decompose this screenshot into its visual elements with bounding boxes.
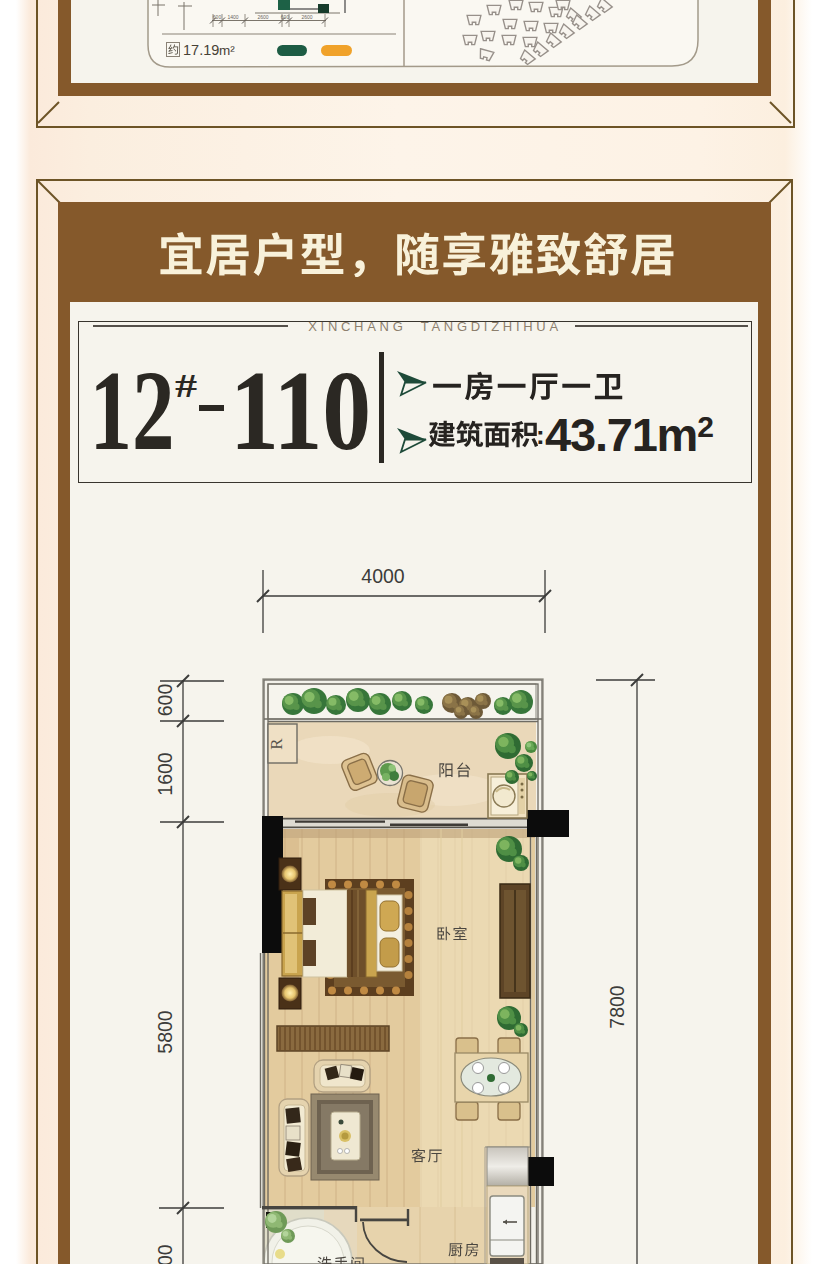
svg-text:R: R: [267, 738, 286, 750]
svg-text:4000: 4000: [361, 565, 405, 587]
svg-text:1200: 1200: [154, 1244, 176, 1264]
svg-text:5800: 5800: [154, 1010, 176, 1054]
svg-text:7800: 7800: [606, 985, 628, 1029]
svg-text:1600: 1600: [154, 752, 176, 796]
svg-text:600: 600: [154, 684, 176, 717]
